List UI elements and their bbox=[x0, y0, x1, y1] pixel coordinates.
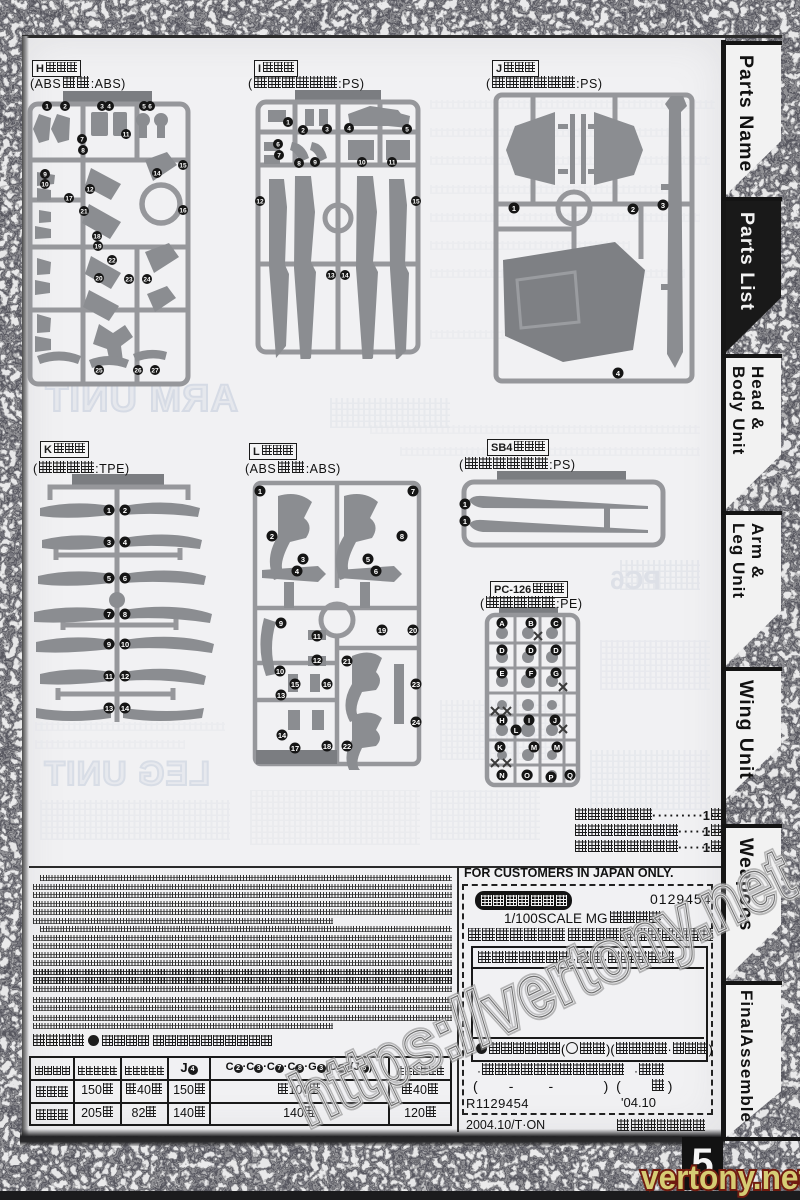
svg-text:vertony.net: vertony.net bbox=[641, 1159, 800, 1197]
